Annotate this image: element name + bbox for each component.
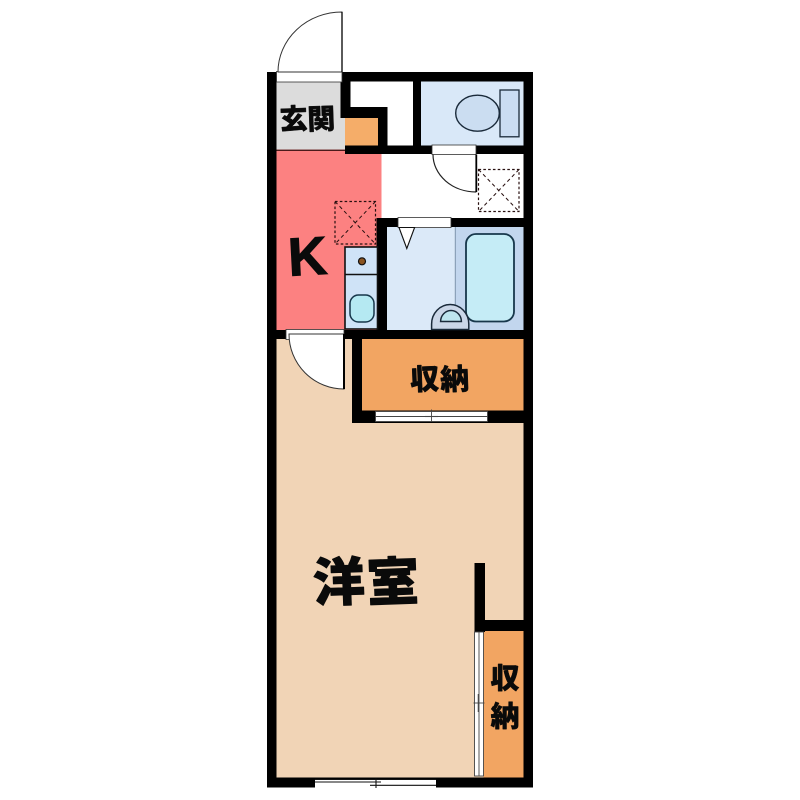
svg-text:K: K [287, 226, 329, 288]
